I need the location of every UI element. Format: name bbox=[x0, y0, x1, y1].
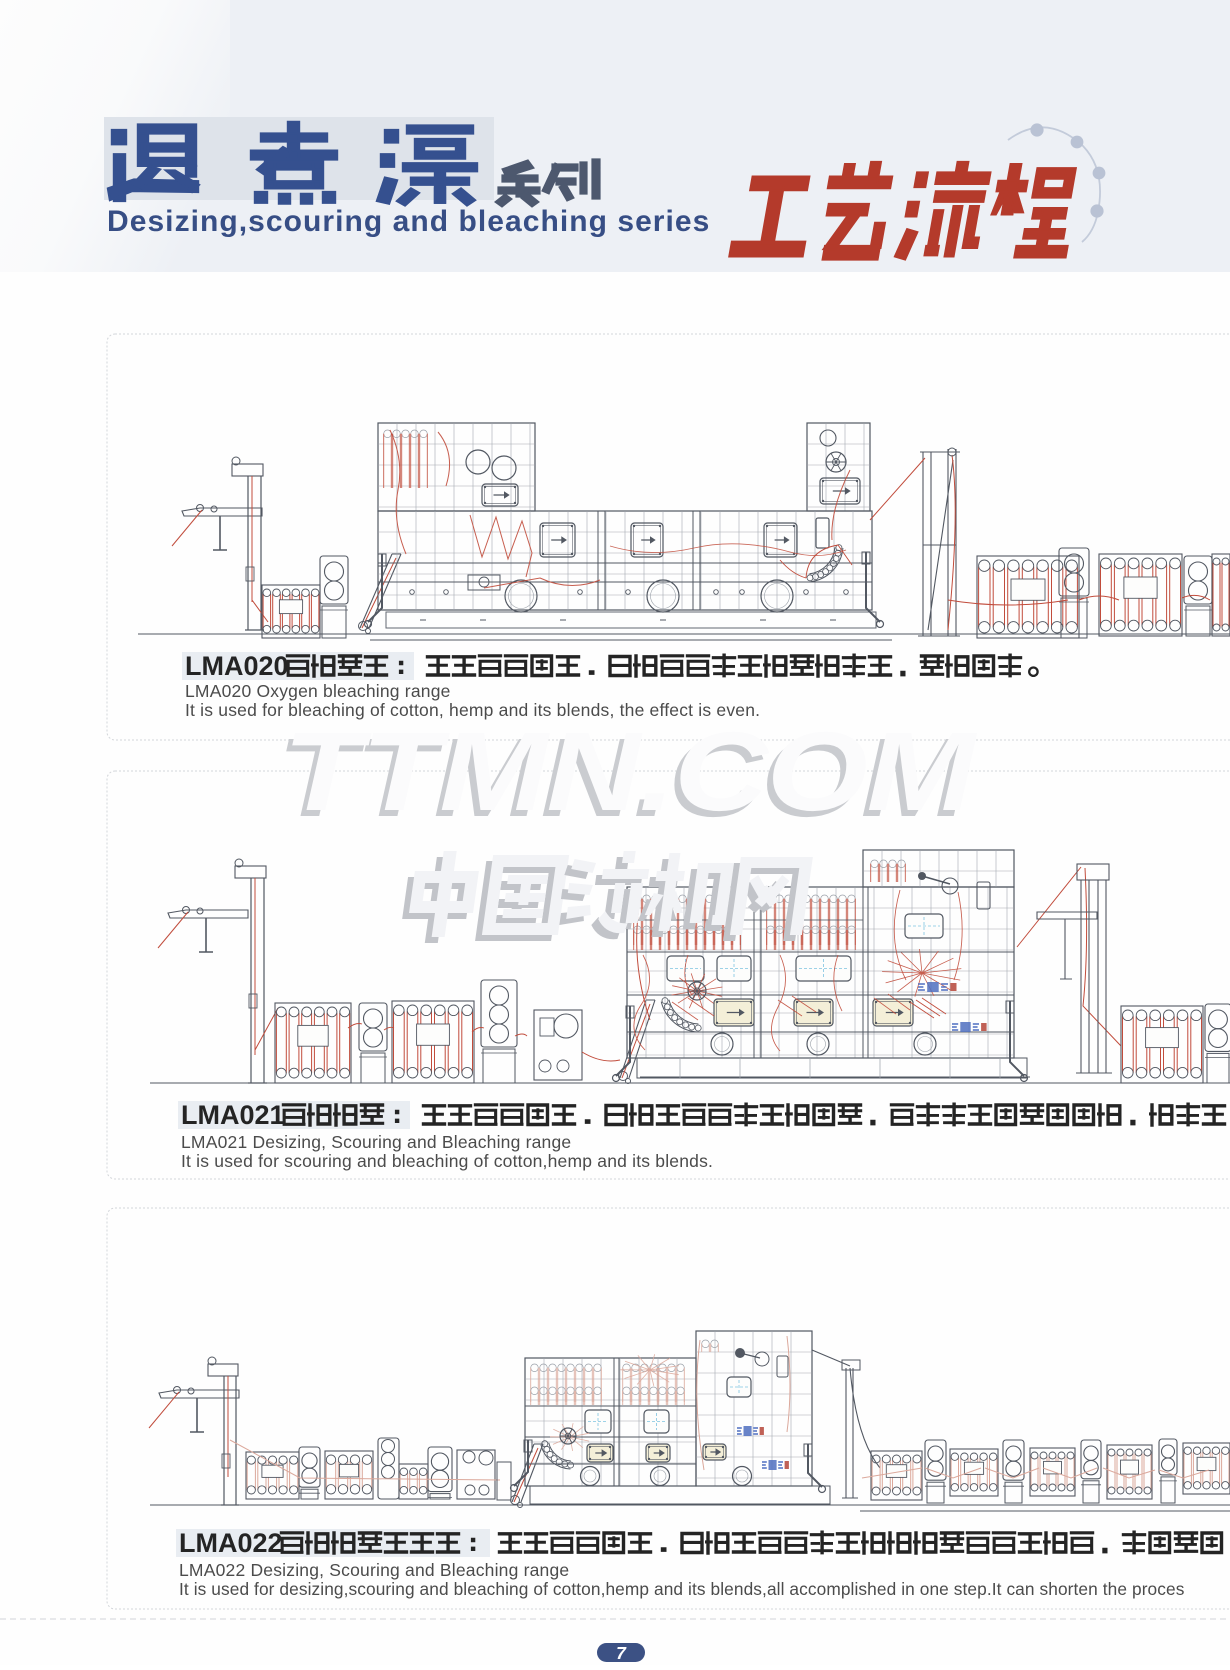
svg-text:LMA020: LMA020 bbox=[185, 651, 289, 681]
svg-text:7: 7 bbox=[616, 1643, 627, 1663]
svg-text:LMA021 Desizing, Scouring and: LMA021 Desizing, Scouring and Bleaching … bbox=[181, 1132, 571, 1152]
svg-text:Desizing,scouring and bleachin: Desizing,scouring and bleaching series bbox=[107, 205, 710, 238]
svg-text:LMA022: LMA022 bbox=[179, 1528, 283, 1558]
svg-text:LMA020 Oxygen bleaching range: LMA020 Oxygen bleaching range bbox=[185, 681, 451, 701]
svg-text:TTMN.COM: TTMN.COM bbox=[283, 708, 978, 834]
svg-text:LMA022 Desizing, Scouring and: LMA022 Desizing, Scouring and Bleaching … bbox=[179, 1560, 569, 1580]
svg-text:LMA021: LMA021 bbox=[181, 1100, 285, 1130]
svg-text:It is used for desizing,scouri: It is used for desizing,scouring and ble… bbox=[179, 1579, 1185, 1599]
svg-text:It is used for scouring and bl: It is used for scouring and bleaching of… bbox=[181, 1151, 713, 1171]
